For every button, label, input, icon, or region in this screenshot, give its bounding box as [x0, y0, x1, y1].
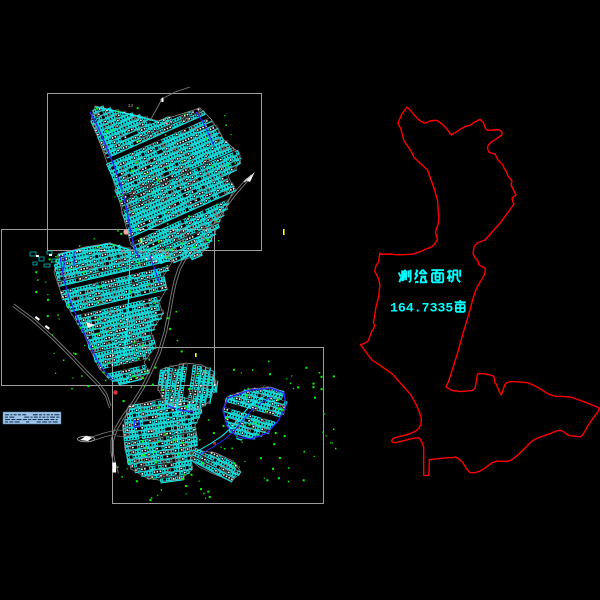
svg-text:85: 85: [219, 164, 225, 169]
svg-text:47: 47: [203, 370, 209, 375]
svg-text:164.7335: 164.7335: [390, 301, 453, 316]
svg-text:18: 18: [186, 451, 192, 456]
svg-text:24: 24: [128, 103, 134, 108]
